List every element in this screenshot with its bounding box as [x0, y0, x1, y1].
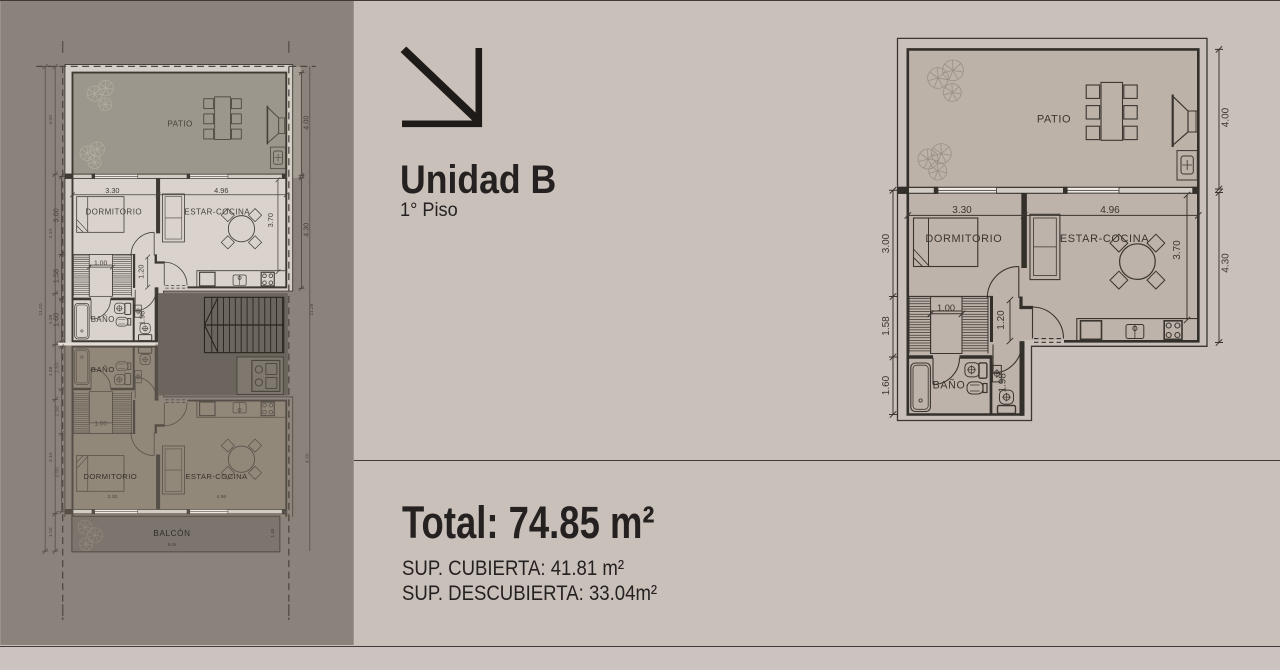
svg-text:3.00: 3.00	[54, 467, 60, 478]
svg-text:1.00: 1.00	[94, 420, 107, 427]
svg-text:1.02: 1.02	[48, 527, 54, 537]
svg-text:8.06: 8.06	[168, 542, 177, 547]
svg-text:3.10: 3.10	[48, 452, 54, 462]
svg-text:1.60: 1.60	[54, 362, 60, 373]
svg-text:4.00: 4.00	[48, 115, 54, 125]
svg-text:BALCÓN: BALCÓN	[153, 528, 190, 538]
svg-text:3.30: 3.30	[108, 494, 118, 500]
svg-text:1.48: 1.48	[48, 366, 54, 376]
svg-text:3.10: 3.10	[48, 229, 54, 239]
svg-text:ESTAR-COCINA: ESTAR-COCINA	[185, 472, 248, 481]
svg-text:BAÑO: BAÑO	[91, 365, 115, 374]
svg-text:4.96: 4.96	[216, 494, 226, 500]
svg-text:DORMITORIO: DORMITORIO	[83, 472, 137, 481]
svg-text:1.58: 1.58	[54, 406, 60, 417]
svg-text:11.20: 11.20	[38, 303, 44, 315]
svg-text:1.40: 1.40	[270, 528, 275, 537]
svg-text:1.38: 1.38	[48, 314, 54, 324]
